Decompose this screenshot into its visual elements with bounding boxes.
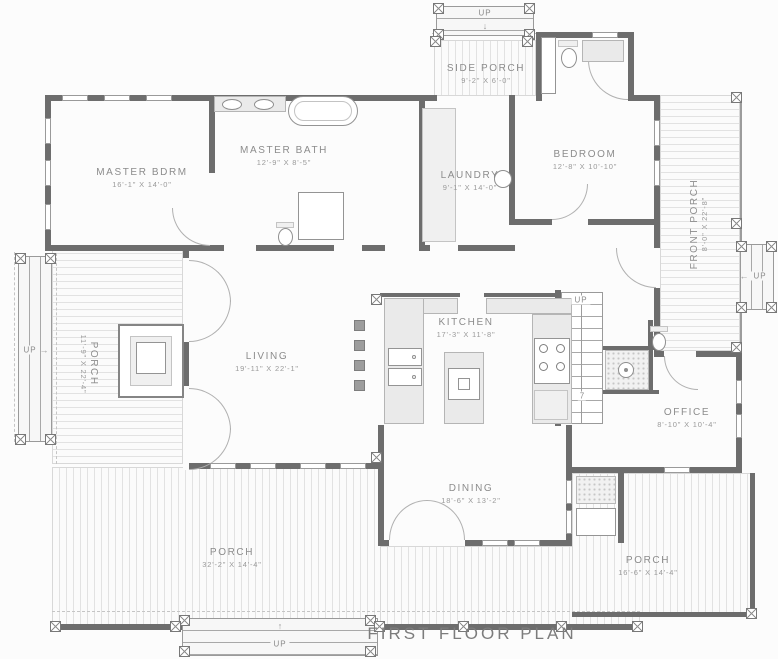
porch-post	[522, 36, 533, 47]
riser-count: 7	[578, 392, 586, 401]
window	[146, 95, 172, 101]
wall-segment	[566, 467, 742, 473]
porch-post	[731, 92, 742, 103]
room-dims: 16'-6" X 14'-4"	[618, 568, 677, 577]
porch-rim	[572, 612, 755, 617]
porch-post	[766, 302, 777, 313]
door-opening	[430, 245, 458, 251]
door-swing-arc	[189, 300, 231, 342]
porch-post	[179, 646, 190, 657]
up-label: UP	[20, 346, 39, 355]
room-name: BEDROOM	[553, 149, 617, 160]
room-dims: 11'-9" X 22'-4"	[79, 335, 88, 394]
kitchen-sink-cabinet	[388, 368, 422, 386]
room-name: DINING	[441, 483, 500, 494]
bathtub-inner-line	[294, 101, 352, 121]
burner	[556, 362, 565, 371]
door-swing-arc	[552, 184, 588, 220]
room-name: PORCH	[202, 547, 261, 558]
room-label-kitchen: KITCHEN 17'-3" X 11'-8"	[437, 317, 496, 339]
kitchen-sink-cabinet	[388, 348, 422, 366]
door-opening	[389, 540, 465, 546]
bar-stool	[354, 380, 365, 391]
refrigerator	[534, 390, 568, 420]
cabinet-knob	[412, 375, 416, 379]
door-swing-arc	[664, 356, 698, 390]
bar-stool	[354, 360, 365, 371]
bar-stool	[354, 340, 365, 351]
porch-post	[524, 3, 535, 14]
door-swing-arc	[172, 208, 210, 246]
room-dims: 12'-9" X 8'-5"	[240, 158, 328, 167]
wall-segment	[509, 95, 515, 225]
window	[104, 95, 130, 101]
window	[654, 120, 660, 146]
window	[45, 118, 51, 144]
burner	[539, 344, 548, 353]
roof-overhang-line	[56, 248, 57, 464]
window	[62, 95, 88, 101]
range-hood-inner	[458, 378, 470, 390]
room-name: SIDE PORCH	[447, 63, 525, 74]
room-dims: 9'-1" X 14'-0"	[441, 183, 500, 192]
window	[482, 540, 508, 546]
porch-post	[365, 646, 376, 657]
toilet-tank	[650, 326, 668, 332]
floor-plan: UP ↓ UP ← UP → UP ↑ UP 7	[0, 0, 778, 659]
porch-post	[45, 434, 56, 445]
up-label: UP	[750, 272, 769, 281]
window	[45, 160, 51, 186]
room-label-master-bath: MASTER BATH 12'-9" X 8'-5"	[240, 145, 328, 167]
room-name: OFFICE	[657, 407, 716, 418]
porch-post	[430, 36, 441, 47]
room-label-master-bdrm: MASTER BDRM 16'-1" X 14'-0"	[96, 167, 188, 189]
roof-overhang-line	[52, 611, 640, 612]
door-swing-arc	[616, 248, 656, 288]
door-opening	[224, 245, 256, 251]
room-label-southeast-porch: PORCH 16'-6" X 14'-4"	[618, 555, 677, 577]
door-swing-arc	[189, 388, 231, 430]
window	[566, 480, 572, 504]
wall-segment	[628, 32, 634, 101]
room-dims: 19'-11" X 22'-1"	[235, 364, 299, 373]
cased-opening-column	[371, 452, 382, 463]
room-label-front-porch: FRONT PORCH 8'-0" X 22'-8"	[689, 179, 711, 270]
porch-post	[170, 621, 181, 632]
up-label: UP	[475, 9, 494, 18]
room-name: LAUNDRY	[441, 170, 500, 181]
porch-post	[15, 253, 26, 264]
room-name: MASTER BATH	[240, 145, 328, 156]
room-dims: 32'-2" X 14'-4"	[202, 560, 261, 569]
sink-basin	[222, 99, 242, 110]
wall-segment	[736, 351, 742, 473]
porch-post	[731, 218, 742, 229]
sink-basin	[254, 99, 274, 110]
window	[654, 160, 660, 186]
room-label-bedroom: BEDROOM 12'-8" X 10'-10"	[553, 149, 617, 171]
roof-overhang-line	[14, 252, 15, 442]
cased-opening-column	[371, 294, 382, 305]
closet-shelf	[582, 40, 624, 62]
door-opening	[552, 219, 588, 225]
porch-post	[632, 621, 643, 632]
up-label: UP	[270, 640, 289, 649]
porch-post	[15, 434, 26, 445]
firebox	[136, 342, 166, 374]
door-opening	[334, 245, 362, 251]
toilet-tank	[558, 40, 578, 47]
room-label-side-porch: SIDE PORCH 9'-2" X 6'-0"	[447, 63, 525, 85]
shower-fixture	[298, 192, 344, 240]
window	[736, 380, 742, 404]
porch-post	[746, 608, 757, 619]
room-label-dining: DINING 18'-6" X 13'-2"	[441, 483, 500, 505]
wall-segment	[618, 467, 624, 543]
room-name: KITCHEN	[437, 317, 496, 328]
room-dims: 9'-2" X 6'-0"	[447, 76, 525, 85]
down-arrow-icon: ↓	[483, 21, 488, 31]
room-dims: 8'-10" X 10'-4"	[657, 420, 716, 429]
kitchen-counter	[486, 298, 572, 314]
room-dims: 8'-0" X 22'-8"	[700, 179, 709, 270]
room-dims: 17'-3" X 11'-8"	[437, 330, 496, 339]
door-swing-arc	[389, 500, 427, 540]
window	[736, 414, 742, 438]
drawing-title: FIRST FLOOR PLAN	[367, 624, 576, 644]
porch-post	[433, 3, 444, 14]
toilet-bowl	[652, 333, 666, 351]
room-dims: 16'-1" X 14'-0"	[96, 180, 188, 189]
window	[340, 463, 366, 469]
up-arrow-icon: ↑	[278, 621, 283, 631]
window	[45, 204, 51, 230]
bar-stool	[354, 320, 365, 331]
room-label-office: OFFICE 8'-10" X 10'-4"	[657, 407, 716, 429]
mudroom-cabinet	[576, 508, 616, 536]
door-swing-arc	[427, 500, 465, 540]
window	[664, 467, 690, 473]
room-label-living: LIVING 19'-11" X 22'-1"	[235, 351, 299, 373]
window	[514, 540, 540, 546]
room-label-west-porch: PORCH 11'-9" X 22'-4"	[77, 335, 99, 394]
burner	[539, 362, 548, 371]
right-arrow-icon: →	[40, 345, 49, 355]
porch-post	[766, 241, 777, 252]
room-name: LIVING	[235, 351, 299, 362]
porch-post	[50, 621, 61, 632]
porch-post	[45, 253, 56, 264]
bathtub-fixture	[541, 37, 556, 94]
toilet-bowl	[561, 48, 577, 68]
window	[300, 463, 326, 469]
door-swing-arc	[189, 260, 231, 302]
wall-segment	[380, 293, 460, 297]
window	[592, 32, 618, 38]
porch-post	[736, 302, 747, 313]
room-name: PORCH	[88, 335, 99, 394]
room-name: MASTER BDRM	[96, 167, 188, 178]
porch-rim	[750, 473, 755, 617]
room-dims: 18'-6" X 13'-2"	[441, 496, 500, 505]
burner	[556, 344, 565, 353]
room-name: PORCH	[618, 555, 677, 566]
window	[210, 463, 236, 469]
powder-sink-drain	[624, 368, 628, 372]
porch-post	[731, 342, 742, 353]
mudroom-bench	[576, 476, 616, 504]
toilet-bowl	[278, 228, 293, 246]
up-label: UP	[571, 296, 590, 305]
room-label-south-porch: PORCH 32'-2" X 14'-4"	[202, 547, 261, 569]
room-label-laundry: LAUNDRY 9'-1" X 14'-0"	[441, 170, 500, 192]
porch-post	[736, 241, 747, 252]
window	[250, 463, 276, 469]
door-swing-arc	[588, 60, 628, 100]
window	[566, 510, 572, 534]
stair-rail-line	[581, 292, 582, 424]
wall-segment	[378, 425, 384, 546]
room-dims: 12'-8" X 10'-10"	[553, 162, 617, 171]
left-arrow-icon: ←	[740, 271, 749, 281]
cabinet-knob	[412, 355, 416, 359]
room-name: FRONT PORCH	[689, 179, 700, 270]
